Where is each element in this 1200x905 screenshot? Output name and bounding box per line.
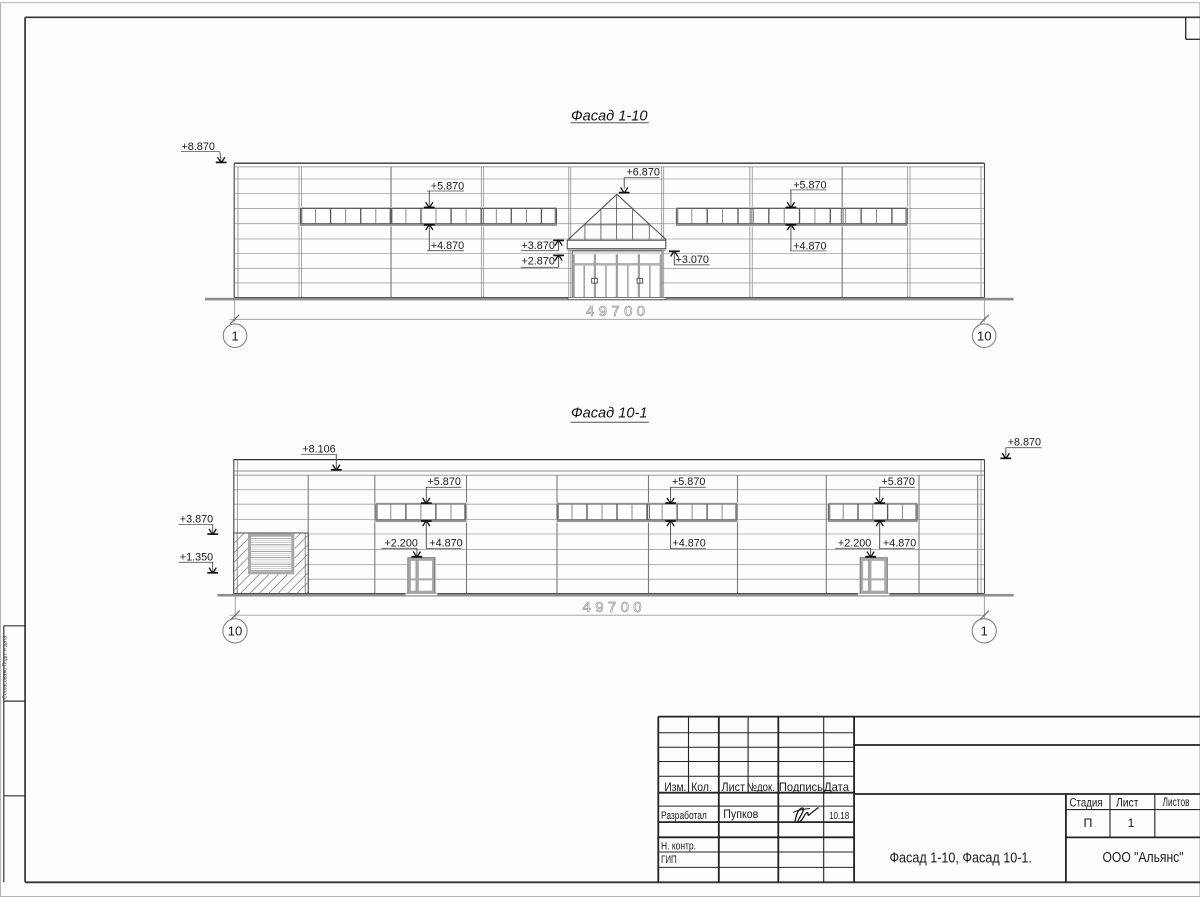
- svg-text:+4.870: +4.870: [672, 537, 705, 549]
- svg-text:ООО "Альянс": ООО "Альянс": [1103, 850, 1184, 866]
- svg-text:49700: 49700: [583, 599, 646, 616]
- svg-text:10: 10: [977, 328, 992, 343]
- svg-text:+2.200: +2.200: [838, 537, 871, 549]
- svg-text:№док.: №док.: [747, 781, 775, 794]
- svg-text:Фасад 1-10, Фасад 10-1.: Фасад 1-10, Фасад 10-1.: [889, 850, 1032, 866]
- svg-text:+5.870: +5.870: [431, 180, 464, 192]
- svg-text:+2.200: +2.200: [385, 537, 418, 549]
- svg-text:10.18: 10.18: [829, 811, 849, 822]
- svg-text:+5.870: +5.870: [882, 476, 915, 488]
- svg-text:10: 10: [228, 624, 243, 639]
- svg-text:Кол.: Кол.: [691, 781, 712, 794]
- svg-text:+3.870: +3.870: [522, 240, 555, 252]
- svg-text:ГИП: ГИП: [661, 854, 677, 866]
- svg-text:Разработал: Разработал: [661, 810, 707, 822]
- svg-text:Подпись: Подпись: [779, 781, 823, 794]
- svg-text:Согласовано Подп. и дата: Согласовано Подп. и дата: [3, 636, 9, 699]
- svg-text:Пупков: Пупков: [723, 808, 758, 821]
- svg-text:+5.870: +5.870: [672, 476, 705, 488]
- svg-text:+4.870: +4.870: [883, 537, 916, 549]
- svg-text:Фасад 1-10: Фасад 1-10: [571, 108, 647, 124]
- svg-text:Дата: Дата: [824, 781, 850, 794]
- svg-text:Стадия: Стадия: [1070, 797, 1103, 810]
- svg-text:1: 1: [231, 328, 238, 343]
- svg-text:+3.870: +3.870: [180, 514, 213, 526]
- svg-text:+2.870: +2.870: [522, 255, 555, 267]
- svg-text:+8.870: +8.870: [182, 141, 215, 153]
- svg-text:+3.070: +3.070: [676, 254, 709, 266]
- svg-text:1: 1: [1127, 816, 1134, 830]
- svg-text:П: П: [1083, 816, 1092, 830]
- svg-text:+6.870: +6.870: [627, 167, 660, 179]
- svg-text:Фасад 10-1: Фасад 10-1: [571, 406, 647, 422]
- svg-text:Лист: Лист: [722, 781, 746, 794]
- svg-text:Листов: Листов: [1163, 796, 1190, 809]
- svg-text:Лист: Лист: [1116, 797, 1139, 810]
- svg-text:+5.870: +5.870: [428, 476, 461, 488]
- svg-text:+1.350: +1.350: [180, 551, 213, 563]
- svg-text:+4.870: +4.870: [429, 537, 462, 549]
- svg-text:1: 1: [981, 624, 988, 639]
- svg-text:49700: 49700: [586, 303, 649, 320]
- svg-text:Изм.: Изм.: [664, 781, 686, 794]
- svg-text:+8.106: +8.106: [302, 444, 335, 456]
- svg-text:Н. контр.: Н. контр.: [661, 840, 696, 852]
- svg-text:+8.870: +8.870: [1008, 437, 1041, 449]
